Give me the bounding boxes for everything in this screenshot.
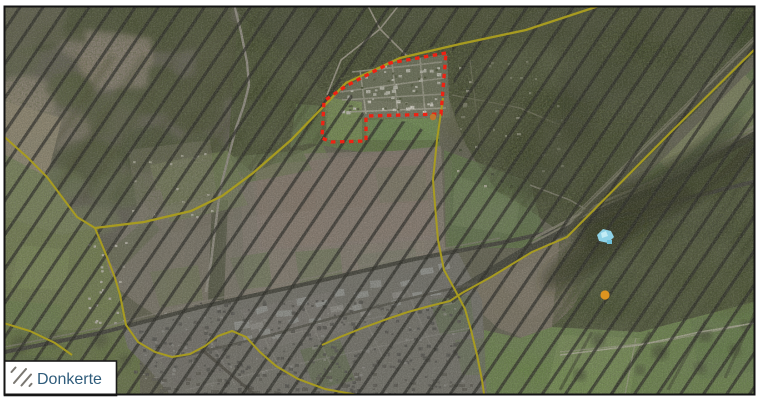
svg-text:Donkerte: Donkerte xyxy=(37,371,102,388)
